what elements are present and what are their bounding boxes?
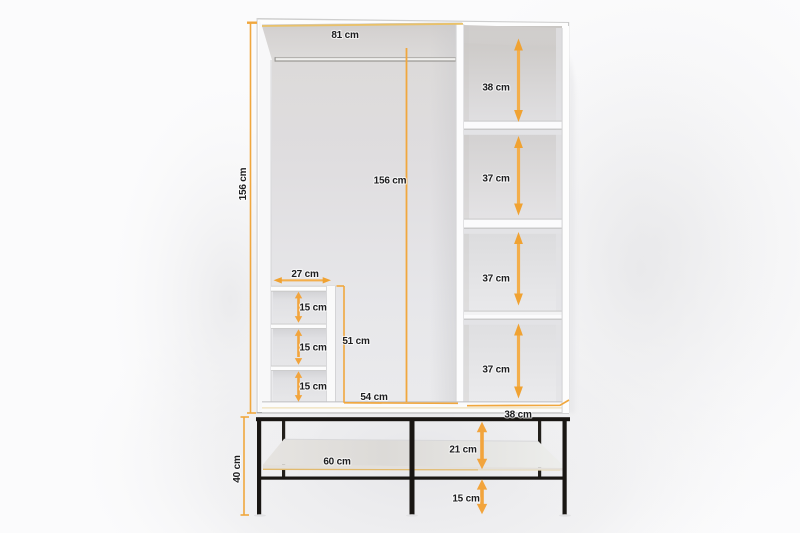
svg-text:15 cm: 15 cm	[452, 494, 480, 505]
svg-text:21 cm: 21 cm	[449, 444, 477, 455]
svg-text:156 cm: 156 cm	[374, 176, 407, 187]
svg-text:54 cm: 54 cm	[360, 392, 388, 403]
svg-text:156 cm: 156 cm	[238, 167, 249, 200]
svg-text:15 cm: 15 cm	[299, 303, 327, 314]
svg-text:27 cm: 27 cm	[291, 269, 319, 280]
svg-text:15 cm: 15 cm	[299, 343, 327, 354]
svg-text:37 cm: 37 cm	[482, 365, 510, 376]
svg-text:37 cm: 37 cm	[482, 274, 510, 285]
svg-text:38 cm: 38 cm	[504, 410, 532, 421]
svg-text:60 cm: 60 cm	[323, 457, 351, 468]
svg-text:51 cm: 51 cm	[342, 336, 370, 347]
svg-text:15 cm: 15 cm	[299, 382, 327, 393]
svg-text:37 cm: 37 cm	[482, 174, 510, 185]
svg-text:40 cm: 40 cm	[232, 455, 243, 483]
svg-text:38 cm: 38 cm	[482, 83, 510, 94]
svg-text:81 cm: 81 cm	[331, 30, 359, 41]
